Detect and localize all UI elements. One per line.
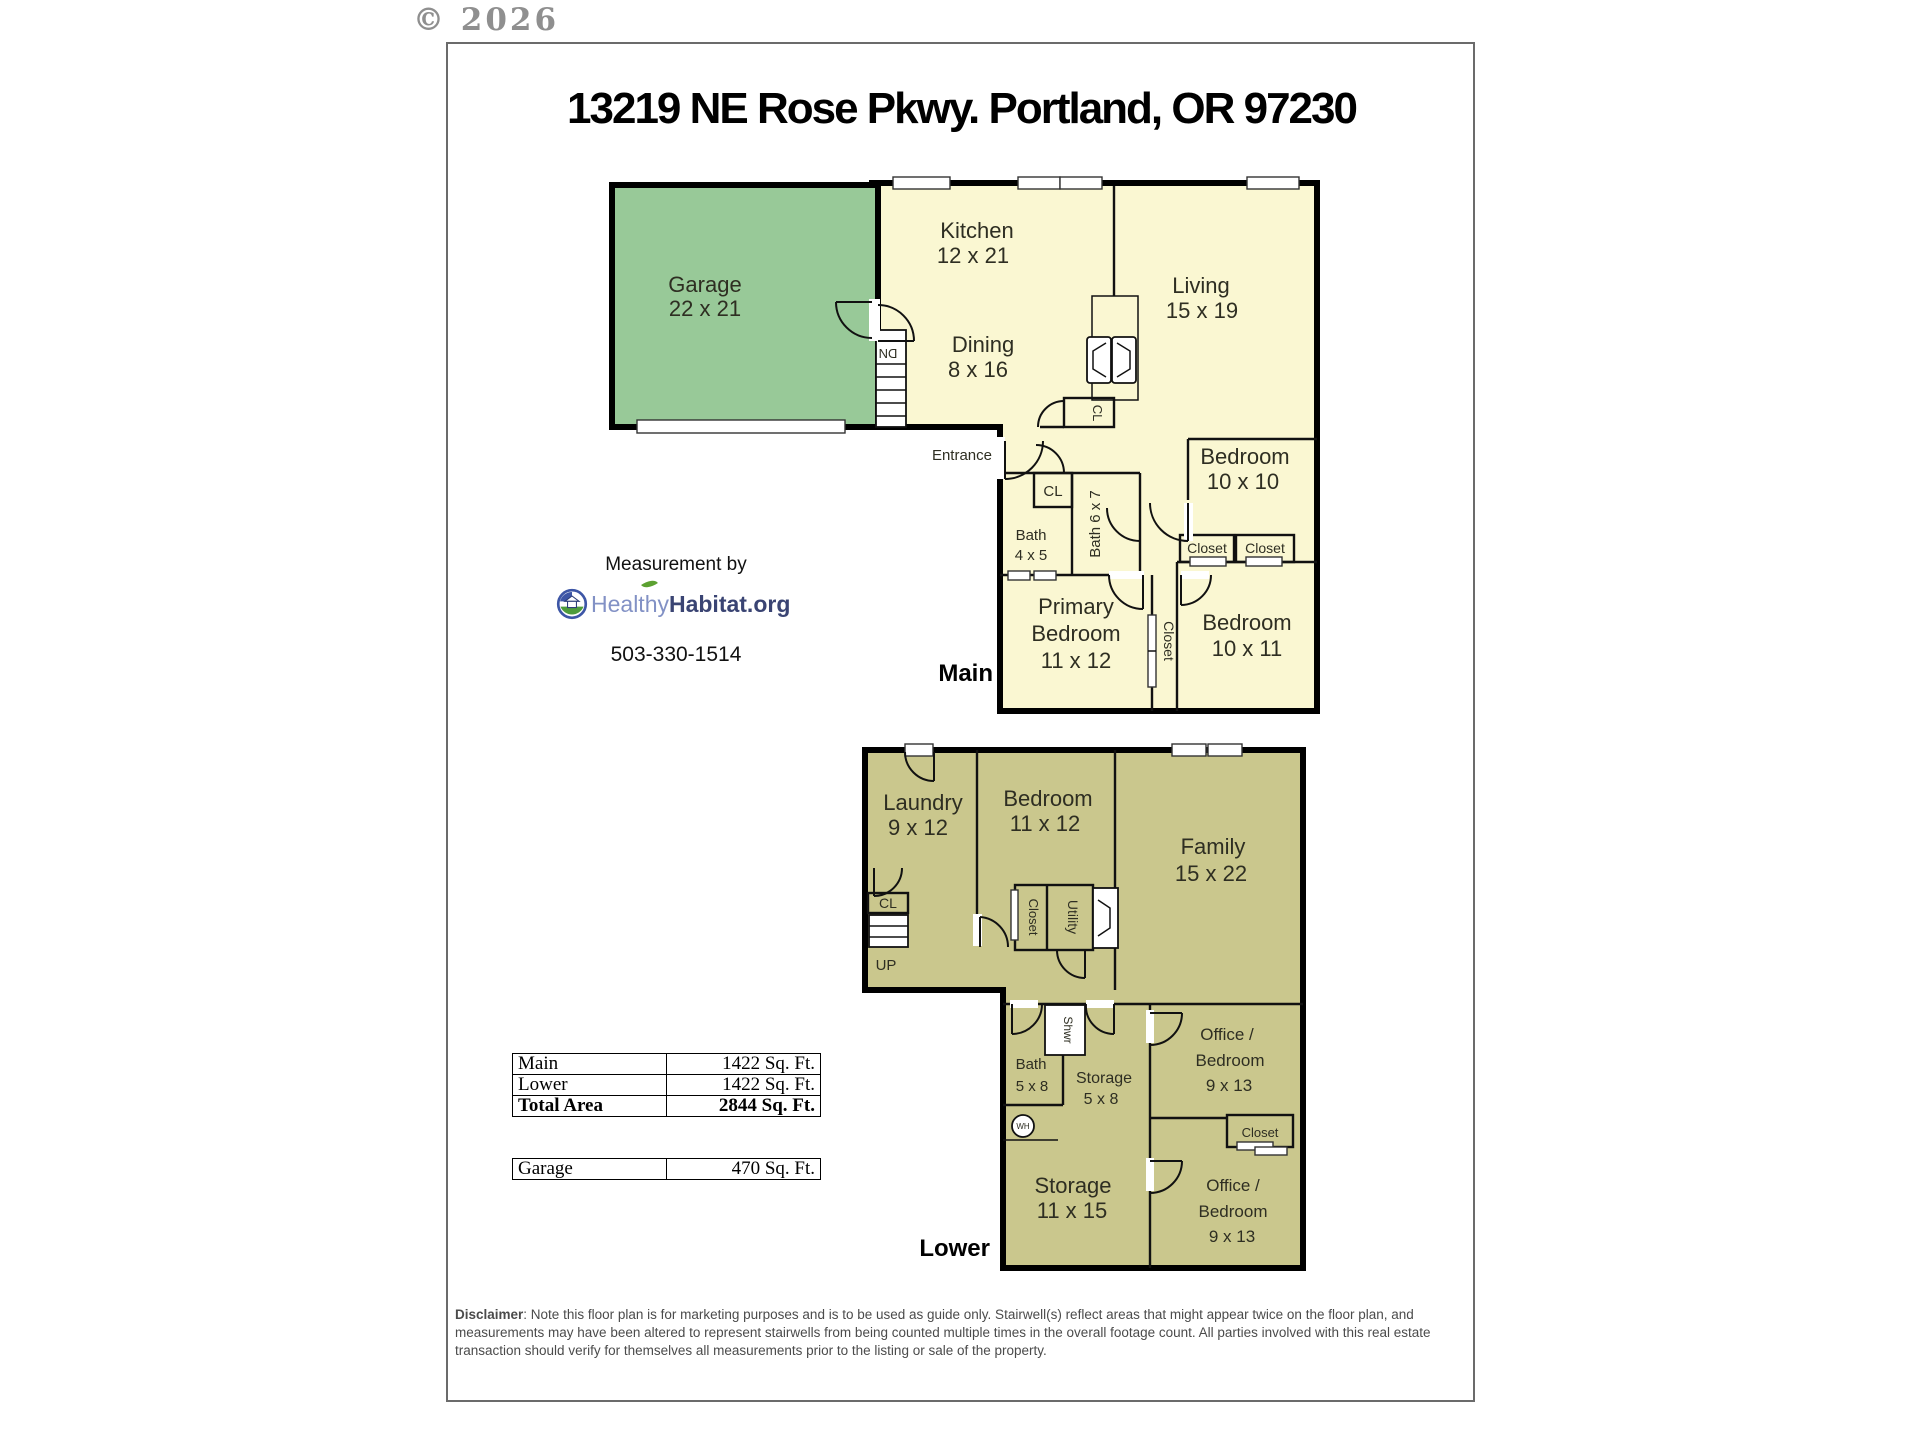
row-value: 470 Sq. Ft. — [667, 1159, 821, 1180]
row-label: Main — [513, 1054, 667, 1075]
table-row-lower: Lower 1422 Sq. Ft. — [513, 1075, 821, 1096]
lower-bath-label: Bath — [1016, 1056, 1047, 1073]
office1-line1: Office / — [1200, 1025, 1254, 1044]
lower-bath-dim: 5 x 8 — [1016, 1078, 1049, 1095]
stairs-dn-label: DN — [879, 346, 898, 361]
storage1-label: Storage — [1076, 1070, 1132, 1087]
property-address-title: 13219 NE Rose Pkwy. Portland, OR 97230 — [450, 84, 1473, 134]
storage2-label: Storage — [1034, 1173, 1111, 1198]
garage-label: Garage — [668, 272, 741, 297]
floor-plan-sheet: © 2026 13219 NE Rose Pkwy. Portland, OR … — [0, 0, 1920, 1440]
dining-dim: 8 x 16 — [948, 357, 1008, 382]
bath2-label: Bath 6 x 7 — [1087, 490, 1104, 558]
table-row-garage: Garage 470 Sq. Ft. — [513, 1159, 821, 1180]
row-label: Garage — [513, 1159, 667, 1180]
storage2-dim: 11 x 15 — [1037, 1198, 1108, 1223]
office-closet-label: Closet — [1242, 1125, 1279, 1140]
table-row-total: Total Area 2844 Sq. Ft. — [513, 1096, 821, 1117]
laundry-label: Laundry — [883, 790, 963, 815]
disclaimer-text: Disclaimer: Note this floor plan is for … — [455, 1306, 1447, 1360]
healthy-habitat-logo-icon — [556, 588, 588, 620]
kitchen-dim: 12 x 21 — [937, 243, 1009, 268]
primary-bedroom-line2: Bedroom — [1031, 621, 1120, 646]
main-fireplace — [1087, 337, 1136, 383]
garage-door-opening — [637, 420, 845, 433]
entry-closet-label: CL — [1043, 483, 1062, 500]
garage-dim: 22 x 21 — [669, 296, 741, 321]
lower-stairs-up — [869, 915, 908, 947]
row-value: 2844 Sq. Ft. — [667, 1096, 821, 1117]
row-value: 1422 Sq. Ft. — [667, 1054, 821, 1075]
copyright-text: © 2026 — [413, 2, 559, 38]
dining-label: Dining — [952, 332, 1014, 357]
bath1-dim: 4 x 5 — [1015, 547, 1048, 564]
row-value: 1422 Sq. Ft. — [667, 1075, 821, 1096]
family-label: Family — [1181, 834, 1246, 859]
bedroom1-label: Bedroom — [1200, 444, 1289, 469]
bedroom2-label: Bedroom — [1202, 610, 1291, 635]
living-label: Living — [1172, 273, 1229, 298]
fireplace-closet-label: CL — [1090, 405, 1105, 422]
row-label: Lower — [513, 1075, 667, 1096]
primary-bedroom-dim: 11 x 12 — [1041, 648, 1112, 673]
corridor-closet-label: Closet — [1161, 621, 1177, 661]
office2-line1: Office / — [1206, 1176, 1260, 1195]
furnace-unit — [1093, 888, 1118, 948]
measurement-caption: Measurement by — [556, 554, 796, 576]
garage-area-table: Garage 470 Sq. Ft. — [512, 1158, 821, 1180]
lower-floor-plan: Laundry 9 x 12 Bedroom 11 x 12 Family 15… — [850, 730, 1320, 1290]
shower-label: Shwr — [1061, 1016, 1075, 1043]
stairs-up-label: UP — [876, 957, 897, 974]
brand-name-habitat: Habitat.org — [669, 591, 790, 618]
table-row-main: Main 1422 Sq. Ft. — [513, 1054, 821, 1075]
utility-label: Utility — [1065, 900, 1081, 934]
office2-line2: Bedroom — [1199, 1202, 1268, 1221]
row-label: Total Area — [513, 1096, 667, 1117]
brand-name-healthy: Healthy — [591, 591, 669, 618]
office2-dim: 9 x 13 — [1209, 1227, 1255, 1246]
bedroom2-dim: 10 x 11 — [1212, 636, 1283, 661]
phone-number: 503-330-1514 — [556, 643, 796, 667]
lower-closet-v-label: Closet — [1026, 899, 1041, 936]
bath1-label: Bath — [1016, 527, 1047, 544]
closet-a-label: Closet — [1187, 540, 1227, 556]
family-dim: 15 x 22 — [1175, 861, 1247, 886]
storage1-dim: 5 x 8 — [1084, 1091, 1119, 1108]
closet-b-label: Closet — [1245, 540, 1285, 556]
area-summary-table: Main 1422 Sq. Ft. Lower 1422 Sq. Ft. Tot… — [512, 1053, 821, 1117]
healthy-habitat-logo: HealthyHabitat.org — [556, 588, 816, 620]
entrance-label: Entrance — [932, 447, 992, 464]
living-dim: 15 x 19 — [1166, 298, 1238, 323]
laundry-dim: 9 x 12 — [888, 815, 948, 840]
lower-level-label: Lower — [919, 1235, 990, 1262]
primary-bedroom-line1: Primary — [1038, 594, 1114, 619]
office1-dim: 9 x 13 — [1206, 1076, 1252, 1095]
disclaimer-label: Disclaimer — [455, 1307, 523, 1322]
main-stairs-down — [876, 330, 906, 427]
water-heater-label: WH — [1016, 1122, 1030, 1131]
kitchen-label: Kitchen — [940, 218, 1013, 243]
lower-closet-entry-label: CL — [879, 895, 897, 911]
garage-room — [612, 185, 878, 427]
main-level-label: Main — [938, 660, 993, 687]
disclaimer-body: : Note this floor plan is for marketing … — [455, 1307, 1431, 1358]
lower-bedroom-label: Bedroom — [1003, 786, 1092, 811]
bedroom1-dim: 10 x 10 — [1207, 469, 1279, 494]
office1-line2: Bedroom — [1196, 1051, 1265, 1070]
lower-bedroom-dim: 11 x 12 — [1010, 811, 1081, 836]
